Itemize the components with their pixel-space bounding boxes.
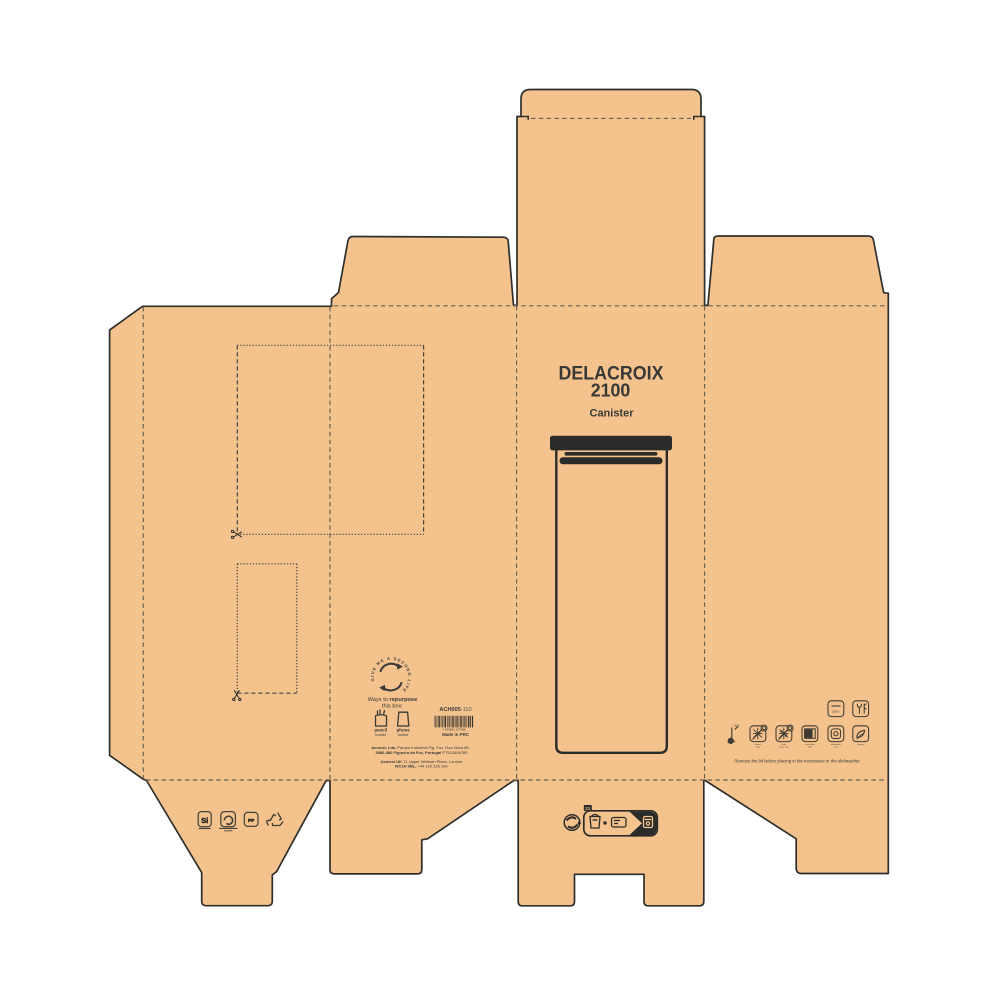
svg-text:freeze safe: freeze safe: [779, 747, 790, 749]
svg-text:Remove the lid before placing: Remove the lid before placing in the mic…: [734, 759, 860, 764]
svg-text:3080-380 Figueira da Foz, Port: 3080-380 Figueira da Foz, Portugal PT513…: [375, 750, 468, 755]
svg-text:Made in PRC: Made in PRC: [442, 732, 470, 737]
svg-text:compost: compost: [857, 743, 865, 746]
svg-text:250°c: 250°c: [832, 710, 840, 714]
svg-text:2100: 2100: [591, 380, 631, 401]
svg-text:this box:: this box:: [382, 703, 404, 709]
svg-text:7 609850 107986: 7 609850 107986: [442, 728, 466, 732]
svg-text:Ways to repurpose: Ways to repurpose: [368, 697, 418, 703]
svg-text:holder: holder: [375, 732, 387, 737]
svg-text:WC1H 0BL, +44 120 226 166: WC1H 0BL, +44 120 226 166: [395, 763, 449, 768]
svg-text:ACH005-110: ACH005-110: [439, 707, 471, 713]
svg-text:Si: Si: [201, 816, 208, 825]
svg-text:90°: 90°: [735, 724, 741, 728]
svg-text:holder: holder: [398, 732, 410, 737]
svg-text:Canister: Canister: [590, 408, 635, 420]
svg-text:PP: PP: [248, 818, 255, 824]
